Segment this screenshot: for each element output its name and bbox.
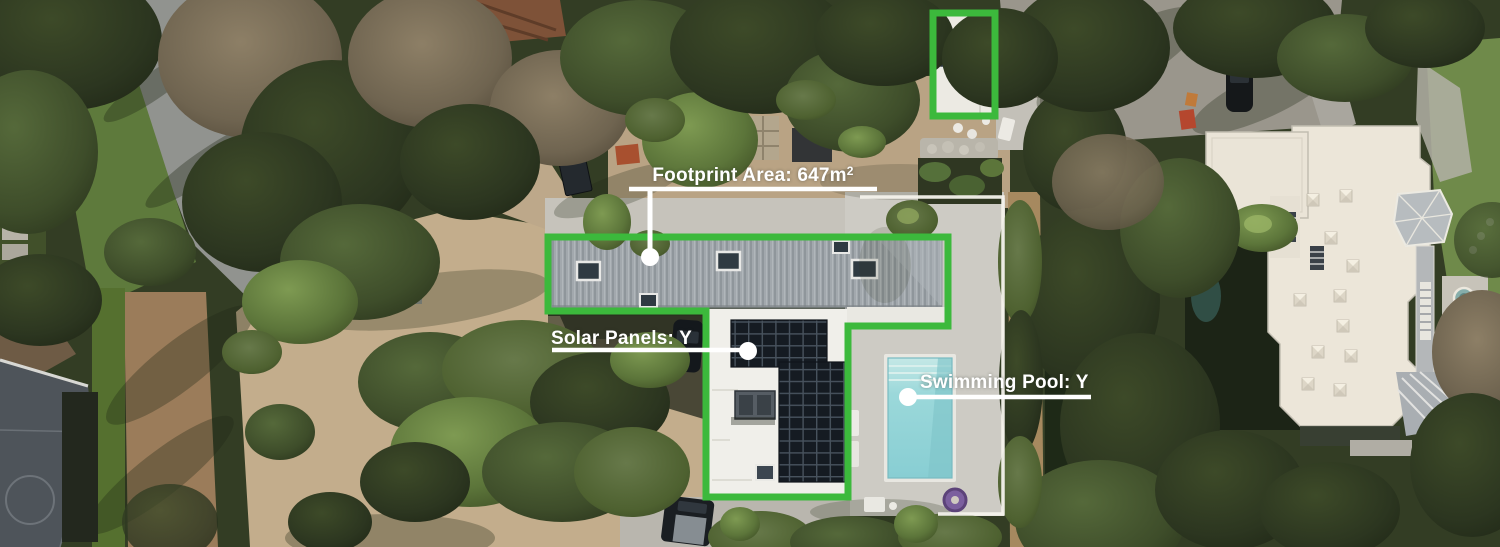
footprint-marker-dot [641, 248, 659, 266]
solar-panels-label: Solar Panels: Y [551, 329, 692, 349]
footprint-area-label-sup: 2 [847, 164, 854, 178]
neighbor-mansion-right [1185, 126, 1452, 456]
aerial-photo [0, 0, 1500, 547]
solar-panels-label-text: Solar Panels: Y [551, 328, 692, 349]
hvac-unit [731, 391, 775, 425]
solar-marker-dot [739, 342, 757, 360]
swimming-pool-label-text: Swimming Pool: Y [920, 372, 1089, 393]
pool-marker-dot [899, 388, 917, 406]
solar-array [779, 362, 845, 482]
swimming-pool-label: Swimming Pool: Y [920, 373, 1089, 393]
aerial-property-screenshot: Footprint Area: 647m2 Solar Panels: Y Sw… [0, 0, 1500, 547]
footprint-area-label: Footprint Area: 647m2 [627, 161, 879, 186]
footprint-area-label-text: Footprint Area: 647m [652, 165, 846, 186]
